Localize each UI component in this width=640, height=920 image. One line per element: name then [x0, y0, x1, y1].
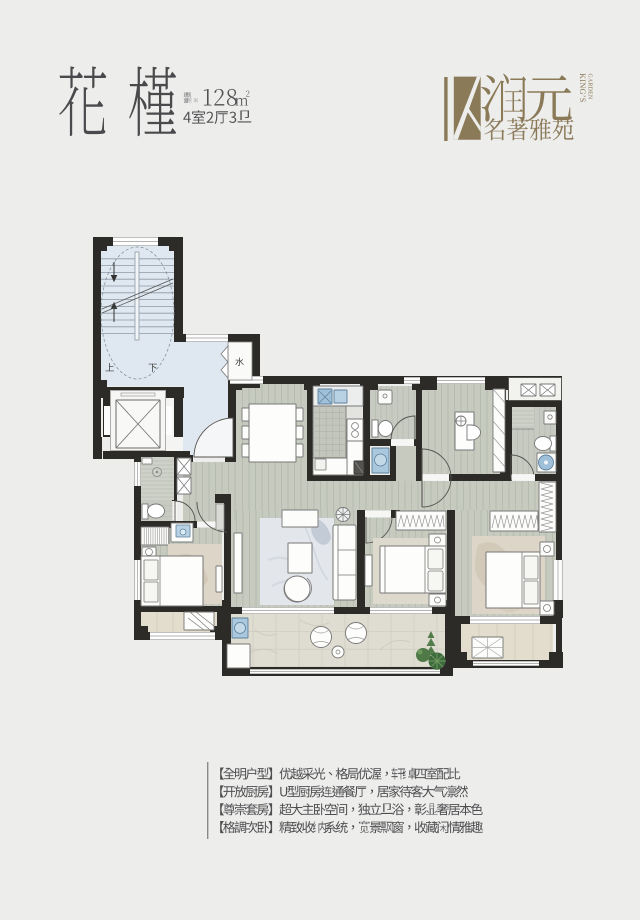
svg-text:GARDEN: GARDEN — [587, 74, 593, 100]
svg-text:KING’S: KING’S — [578, 73, 587, 103]
